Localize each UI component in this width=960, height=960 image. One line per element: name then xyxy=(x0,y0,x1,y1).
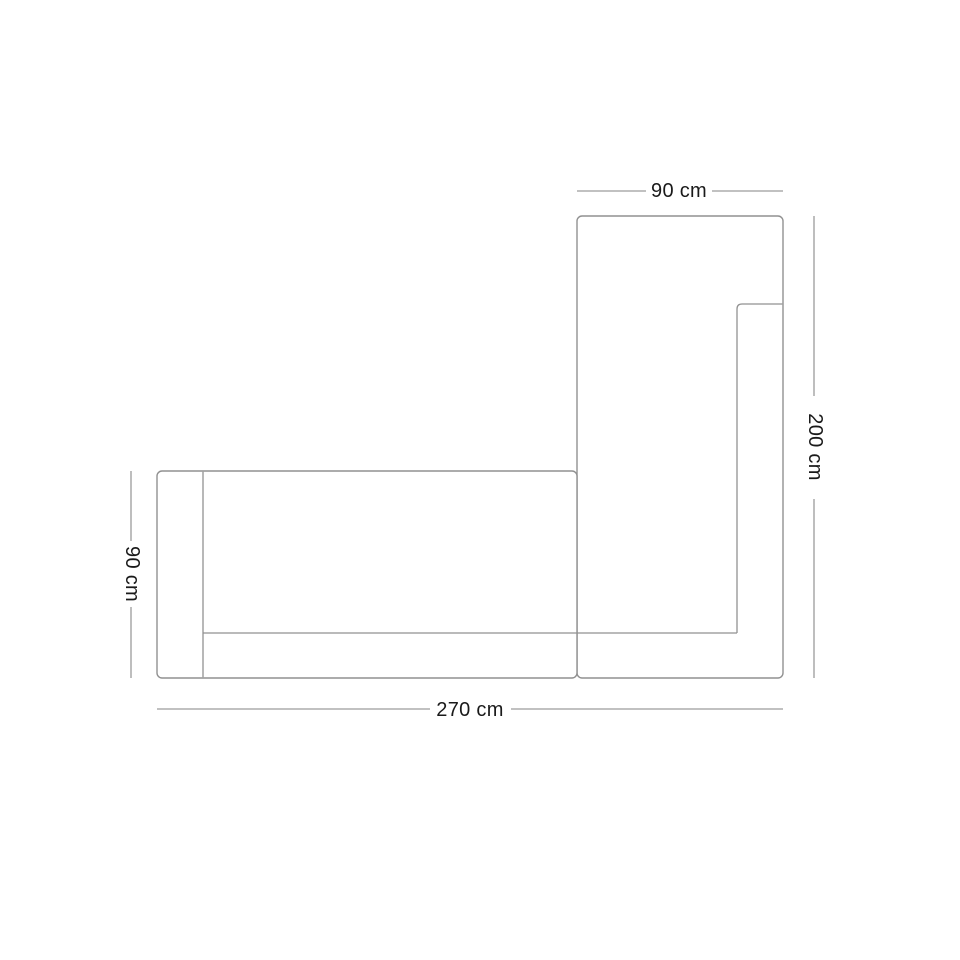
sofa-dimension-diagram-page: 90 cm 200 cm 90 cm 270 cm xyxy=(0,0,960,960)
right-height-label: 200 cm xyxy=(804,413,826,480)
sofa-section-outline xyxy=(157,471,577,678)
top-width-label: 90 cm xyxy=(651,180,707,202)
chaise-section-outline xyxy=(577,216,783,678)
left-dimension-line: 90 cm xyxy=(121,471,143,678)
bottom-width-label: 270 cm xyxy=(436,699,503,721)
left-depth-label: 90 cm xyxy=(121,546,143,602)
sofa-dimension-diagram: 90 cm 200 cm 90 cm 270 cm xyxy=(0,0,960,960)
top-dimension-line: 90 cm xyxy=(577,180,783,202)
bottom-dimension-line: 270 cm xyxy=(157,699,783,721)
right-dimension-line: 200 cm xyxy=(804,216,826,678)
